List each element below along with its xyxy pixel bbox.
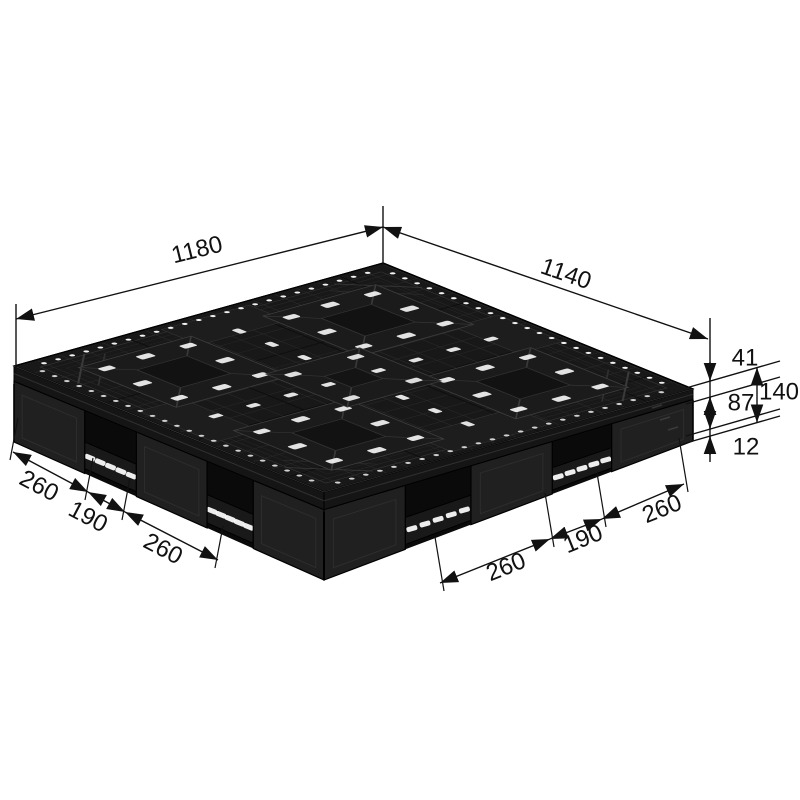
left-segment-label: 260: [139, 528, 187, 571]
right-segment-label: 190: [559, 519, 606, 559]
total-height-label: 140: [759, 379, 799, 406]
left-segment-label: 190: [64, 496, 112, 539]
width-label: 1180: [169, 231, 226, 270]
right-segment-label: 260: [638, 489, 685, 529]
left-segment-label: 260: [15, 465, 63, 508]
fork-clearance-label: 87: [728, 390, 755, 417]
pallet-dimension-diagram: 1180 1140 41 87 12 140 260 190 260: [0, 0, 800, 800]
diagram-canvas: 1180 1140 41 87 12 140 260 190 260: [0, 0, 800, 800]
bottom-deck-thickness-label: 12: [733, 434, 760, 461]
deck-thickness-label: 41: [732, 345, 759, 372]
dimension-heights: 41 87 12 140: [686, 345, 799, 461]
right-segment-label: 260: [482, 547, 529, 587]
depth-label: 1140: [537, 253, 595, 295]
extension-tick: [435, 537, 444, 591]
